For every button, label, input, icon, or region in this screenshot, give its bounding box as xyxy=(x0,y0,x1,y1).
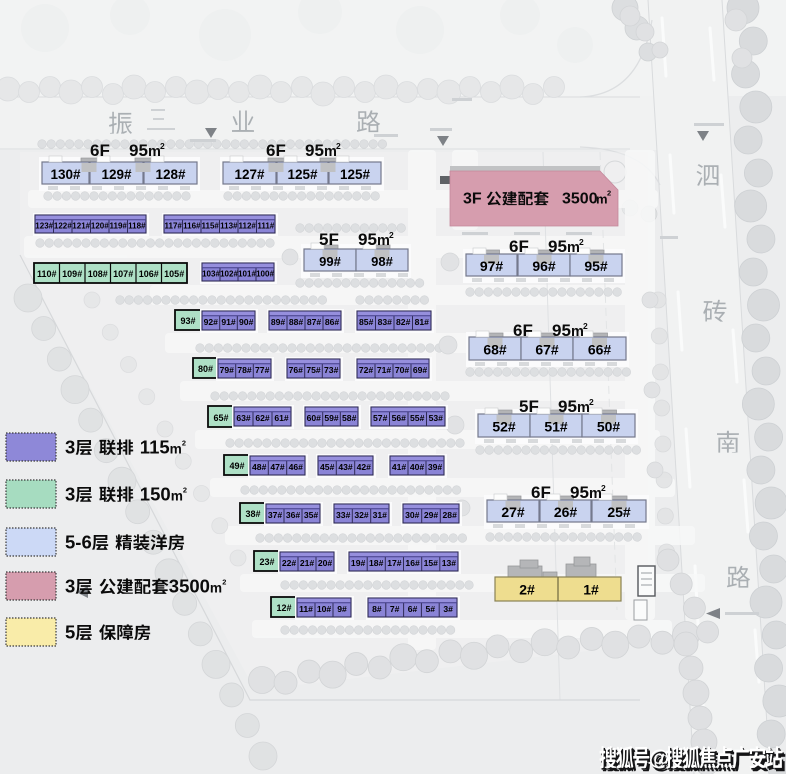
svg-text:89#: 89# xyxy=(271,317,286,327)
svg-text:113#: 113# xyxy=(220,221,238,230)
svg-text:73#: 73# xyxy=(324,365,339,375)
svg-text:@: @ xyxy=(649,747,669,770)
svg-text:30#: 30# xyxy=(405,510,420,520)
svg-text:32#: 32# xyxy=(354,510,369,520)
svg-text:62#: 62# xyxy=(255,413,270,423)
svg-text:11#: 11# xyxy=(299,604,313,614)
svg-text:111#: 111# xyxy=(257,221,274,230)
svg-text:122#: 122# xyxy=(54,221,72,230)
svg-text:95: 95 xyxy=(558,397,577,416)
svg-text:77#: 77# xyxy=(255,365,270,375)
svg-text:10#: 10# xyxy=(317,604,332,614)
svg-text:m: m xyxy=(589,486,602,502)
svg-text:129#: 129# xyxy=(101,167,132,182)
svg-text:67#: 67# xyxy=(535,342,559,358)
svg-text:106#: 106# xyxy=(139,269,159,279)
svg-text:46#: 46# xyxy=(289,462,304,472)
svg-text:38#: 38# xyxy=(245,509,260,519)
svg-text:37#: 37# xyxy=(268,510,283,520)
svg-text:48#: 48# xyxy=(252,462,267,472)
svg-text:123#: 123# xyxy=(35,221,53,230)
svg-text:128#: 128# xyxy=(155,167,186,182)
svg-text:5: 5 xyxy=(65,622,75,643)
svg-text:13#: 13# xyxy=(442,558,457,568)
svg-text:31#: 31# xyxy=(373,510,388,520)
svg-text:115: 115 xyxy=(140,437,170,458)
svg-text:95#: 95# xyxy=(584,258,608,274)
svg-text:70#: 70# xyxy=(395,365,410,375)
svg-text:6#: 6# xyxy=(408,604,418,614)
svg-text:29#: 29# xyxy=(424,510,439,520)
svg-text:60#: 60# xyxy=(307,413,322,423)
svg-text:119#: 119# xyxy=(110,221,128,230)
svg-text:90#: 90# xyxy=(239,317,254,327)
svg-text:3: 3 xyxy=(65,437,75,458)
svg-text:58#: 58# xyxy=(342,413,357,423)
svg-text:105#: 105# xyxy=(164,269,184,279)
svg-text:2: 2 xyxy=(183,485,187,494)
svg-text:65#: 65# xyxy=(213,413,228,423)
svg-text:m: m xyxy=(171,489,183,504)
svg-text:2: 2 xyxy=(579,237,584,247)
svg-text:49#: 49# xyxy=(229,461,244,471)
svg-text:m: m xyxy=(596,192,608,207)
svg-text:88#: 88# xyxy=(289,317,304,327)
svg-text:41#: 41# xyxy=(392,462,407,472)
svg-text:9#: 9# xyxy=(337,604,347,614)
svg-text:33#: 33# xyxy=(336,510,351,520)
svg-text:95: 95 xyxy=(548,237,567,256)
svg-text:6F: 6F xyxy=(513,321,533,340)
svg-text:95: 95 xyxy=(358,230,377,249)
svg-text:117#: 117# xyxy=(165,221,183,230)
svg-text:m: m xyxy=(577,400,590,416)
svg-text:99#: 99# xyxy=(319,254,341,269)
svg-text:57#: 57# xyxy=(373,413,388,423)
svg-text:78#: 78# xyxy=(237,365,252,375)
svg-text:125#: 125# xyxy=(340,167,371,182)
svg-text:112#: 112# xyxy=(239,221,257,230)
svg-text:m: m xyxy=(148,144,161,160)
svg-text:6F: 6F xyxy=(509,237,529,256)
svg-text:127#: 127# xyxy=(234,167,265,182)
svg-text:7#: 7# xyxy=(390,604,400,614)
svg-text:116#: 116# xyxy=(183,221,201,230)
svg-text:3F: 3F xyxy=(463,191,482,208)
svg-text:86#: 86# xyxy=(325,317,340,327)
svg-text:5F: 5F xyxy=(519,397,539,416)
svg-text:53#: 53# xyxy=(429,413,444,423)
svg-text:3500: 3500 xyxy=(562,191,598,208)
svg-text:97#: 97# xyxy=(480,258,504,274)
svg-text:5#: 5# xyxy=(426,604,436,614)
svg-text:52#: 52# xyxy=(492,419,516,435)
svg-text:92#: 92# xyxy=(204,317,219,327)
svg-text:115#: 115# xyxy=(202,221,220,230)
svg-text:63#: 63# xyxy=(236,413,251,423)
svg-text:108#: 108# xyxy=(88,269,108,279)
svg-text:2#: 2# xyxy=(519,582,535,598)
svg-text:101#: 101# xyxy=(238,269,256,278)
svg-text:71#: 71# xyxy=(377,365,392,375)
svg-text:16#: 16# xyxy=(405,558,420,568)
svg-text:93#: 93# xyxy=(180,316,195,326)
svg-text:110#: 110# xyxy=(37,269,57,279)
svg-text:59#: 59# xyxy=(324,413,339,423)
svg-text:23#: 23# xyxy=(259,557,274,567)
svg-text:96#: 96# xyxy=(532,258,556,274)
svg-text:26#: 26# xyxy=(554,504,578,520)
svg-text:72#: 72# xyxy=(359,365,374,375)
svg-text:2: 2 xyxy=(589,397,594,407)
svg-text:50#: 50# xyxy=(597,419,621,435)
svg-text:120#: 120# xyxy=(91,221,109,230)
svg-text:83#: 83# xyxy=(378,317,393,327)
svg-text:6F: 6F xyxy=(266,141,286,160)
svg-text:20#: 20# xyxy=(318,558,333,568)
svg-text:109#: 109# xyxy=(62,269,82,279)
svg-text:6F: 6F xyxy=(90,141,110,160)
svg-text:35#: 35# xyxy=(304,510,319,520)
svg-text:82#: 82# xyxy=(396,317,411,327)
svg-text:45#: 45# xyxy=(320,462,335,472)
svg-text:12#: 12# xyxy=(276,603,291,613)
svg-text:19#: 19# xyxy=(351,558,366,568)
svg-text:1#: 1# xyxy=(583,582,599,598)
svg-text:2: 2 xyxy=(389,230,394,240)
svg-text:m: m xyxy=(324,144,337,160)
svg-text:39#: 39# xyxy=(428,462,443,472)
svg-text:76#: 76# xyxy=(289,365,304,375)
svg-text:102#: 102# xyxy=(220,269,238,278)
svg-text:36#: 36# xyxy=(286,510,301,520)
svg-text:m: m xyxy=(567,240,580,256)
svg-text:125#: 125# xyxy=(287,167,318,182)
svg-text:47#: 47# xyxy=(270,462,285,472)
svg-text:98#: 98# xyxy=(371,254,393,269)
svg-text:3#: 3# xyxy=(443,604,453,614)
svg-text:15#: 15# xyxy=(424,558,439,568)
svg-text:75#: 75# xyxy=(306,365,321,375)
svg-text:5F: 5F xyxy=(319,230,339,249)
svg-text:18#: 18# xyxy=(369,558,384,568)
svg-text:107#: 107# xyxy=(113,269,133,279)
svg-text:2: 2 xyxy=(160,141,165,151)
svg-text:27#: 27# xyxy=(501,504,525,520)
svg-text:61#: 61# xyxy=(274,413,289,423)
svg-text:28#: 28# xyxy=(443,510,458,520)
svg-text:95: 95 xyxy=(552,321,571,340)
svg-text:m: m xyxy=(210,581,222,596)
svg-text:6F: 6F xyxy=(531,483,551,502)
svg-text:m: m xyxy=(377,233,390,249)
svg-text:2: 2 xyxy=(583,321,588,331)
svg-text:95: 95 xyxy=(305,141,324,160)
svg-text:91#: 91# xyxy=(221,317,236,327)
svg-text:56#: 56# xyxy=(392,413,407,423)
svg-text:5-6: 5-6 xyxy=(65,532,92,553)
svg-text:21#: 21# xyxy=(300,558,315,568)
svg-text:3: 3 xyxy=(65,576,75,597)
svg-text:95: 95 xyxy=(570,483,589,502)
svg-text:87#: 87# xyxy=(307,317,322,327)
svg-text:51#: 51# xyxy=(544,419,568,435)
svg-text:2: 2 xyxy=(182,438,186,447)
svg-text:25#: 25# xyxy=(607,504,631,520)
svg-text:m: m xyxy=(571,324,584,340)
svg-text:2: 2 xyxy=(336,141,341,151)
svg-text:150: 150 xyxy=(140,484,171,505)
svg-text:68#: 68# xyxy=(483,342,507,358)
svg-text:100#: 100# xyxy=(256,269,274,278)
svg-text:118#: 118# xyxy=(128,221,146,230)
svg-text:81#: 81# xyxy=(415,317,430,327)
svg-text:95: 95 xyxy=(129,141,148,160)
svg-text:130#: 130# xyxy=(50,167,81,182)
svg-text:103#: 103# xyxy=(202,269,220,278)
svg-text:m: m xyxy=(170,442,182,457)
svg-text:8#: 8# xyxy=(372,604,382,614)
svg-text:79#: 79# xyxy=(220,365,235,375)
svg-text:3: 3 xyxy=(65,484,75,505)
svg-text:121#: 121# xyxy=(72,221,90,230)
svg-text:85#: 85# xyxy=(359,317,374,327)
svg-text:2: 2 xyxy=(601,483,606,493)
svg-text:66#: 66# xyxy=(588,342,612,358)
svg-text:55#: 55# xyxy=(410,413,425,423)
svg-text:80#: 80# xyxy=(198,364,213,374)
svg-text:17#: 17# xyxy=(387,558,402,568)
svg-text:40#: 40# xyxy=(410,462,425,472)
svg-text:69#: 69# xyxy=(413,365,428,375)
svg-text:3500: 3500 xyxy=(169,576,210,597)
svg-text:42#: 42# xyxy=(357,462,372,472)
svg-text:2: 2 xyxy=(222,577,226,586)
svg-text:43#: 43# xyxy=(338,462,353,472)
svg-text:2: 2 xyxy=(607,189,611,198)
svg-text:22#: 22# xyxy=(282,558,297,568)
